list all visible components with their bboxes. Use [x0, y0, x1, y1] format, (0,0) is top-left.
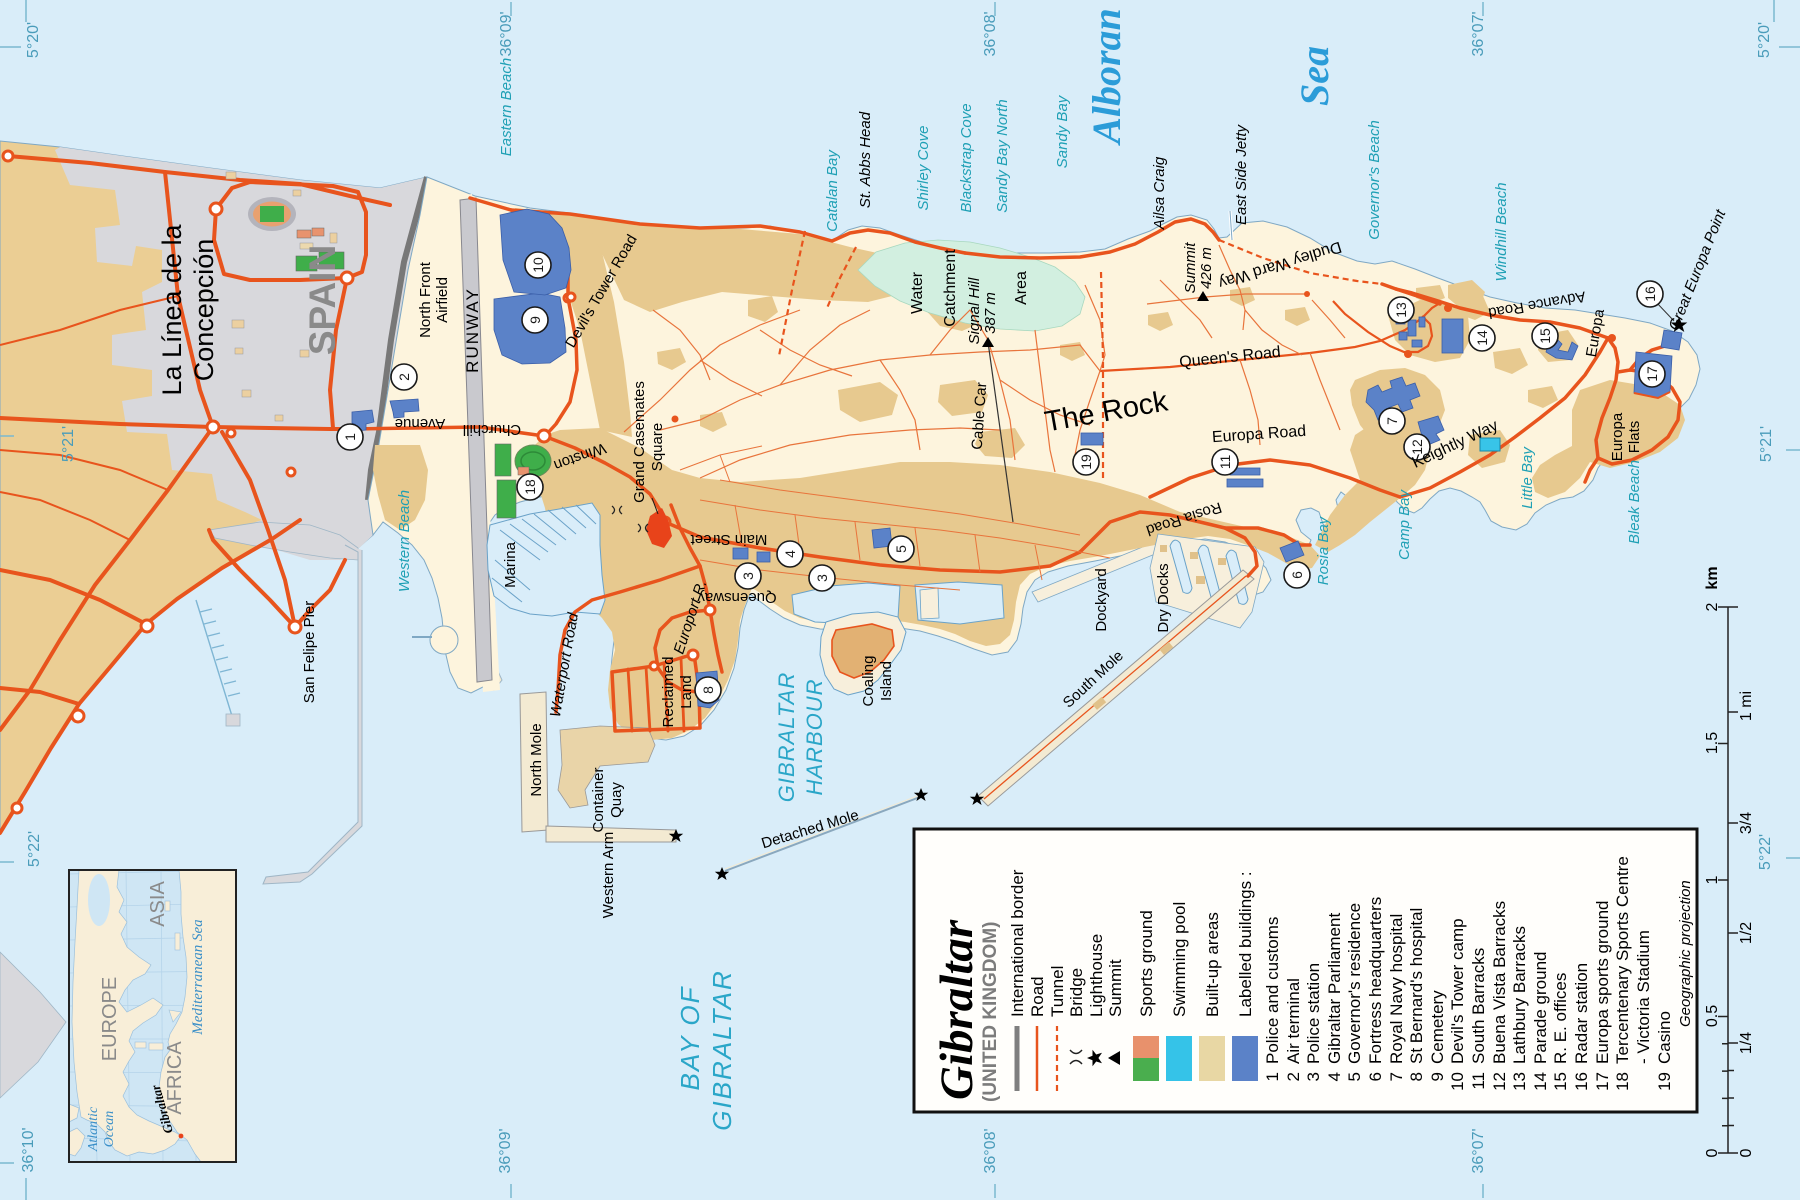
svg-text:Windhill Beach: Windhill Beach [1493, 182, 1510, 281]
svg-text:Flats: Flats [1626, 421, 1643, 454]
svg-text:14: 14 [1531, 1072, 1550, 1091]
svg-text:18: 18 [522, 479, 538, 495]
svg-text:9: 9 [527, 316, 543, 324]
svg-text:San Felipe Pier: San Felipe Pier [301, 601, 318, 704]
svg-text:Sandy Bay: Sandy Bay [1054, 94, 1071, 168]
svg-text:HARBOUR: HARBOUR [802, 678, 827, 795]
svg-text:Ocean: Ocean [102, 1111, 117, 1148]
svg-text:Water: Water [909, 271, 926, 314]
svg-text:8: 8 [700, 686, 716, 694]
svg-text:Summit: Summit [1182, 242, 1199, 294]
svg-text:5°22': 5°22' [1757, 834, 1774, 870]
svg-text:1/2: 1/2 [1738, 922, 1755, 944]
svg-text:Police station: Police station [1304, 963, 1323, 1064]
svg-text:Buena Vista Barracks: Buena Vista Barracks [1490, 901, 1509, 1064]
svg-text:36°07': 36°07' [1470, 11, 1487, 56]
svg-text:2: 2 [396, 373, 412, 381]
svg-text:Camp Bay: Camp Bay [1396, 488, 1413, 560]
svg-text:5: 5 [1345, 1072, 1364, 1081]
svg-text:36°10': 36°10' [20, 1127, 37, 1172]
svg-text:4: 4 [782, 550, 798, 558]
svg-text:2: 2 [1284, 1072, 1303, 1081]
svg-text:RUNWAY: RUNWAY [463, 287, 482, 373]
svg-text:BAY OF: BAY OF [675, 985, 705, 1090]
svg-text:36°07': 36°07' [1470, 1128, 1487, 1173]
svg-text:North Front: North Front [417, 261, 434, 338]
svg-text:Gibraltar: Gibraltar [931, 919, 983, 1100]
svg-text:Lathbury Barracks: Lathbury Barracks [1510, 926, 1529, 1064]
svg-text:5°20': 5°20' [1756, 22, 1773, 58]
svg-text:6: 6 [1289, 571, 1305, 579]
svg-text:11: 11 [1469, 1072, 1488, 1090]
svg-text:Sea: Sea [1292, 46, 1337, 106]
svg-text:36°09': 36°09' [498, 11, 515, 56]
svg-text:Catchment: Catchment [942, 249, 959, 327]
svg-text:Little Bay: Little Bay [1519, 446, 1536, 509]
svg-text:2: 2 [1704, 602, 1721, 611]
svg-text:0: 0 [1738, 1148, 1755, 1157]
svg-text:Royal Navy hospital: Royal Navy hospital [1387, 914, 1406, 1064]
svg-text:St. Abbs Head: St. Abbs Head [857, 111, 874, 208]
svg-text:Bridge: Bridge [1067, 968, 1086, 1017]
svg-text:International border: International border [1008, 869, 1027, 1017]
svg-text:Governor's Beach: Governor's Beach [1366, 120, 1383, 240]
svg-text:4: 4 [1325, 1072, 1344, 1081]
svg-text:19: 19 [1655, 1072, 1674, 1091]
svg-text:Governor's residence: Governor's residence [1345, 903, 1364, 1064]
svg-text:km: km [1704, 566, 1721, 589]
svg-text:Land: Land [678, 675, 695, 708]
svg-text:Tunnel: Tunnel [1048, 966, 1067, 1017]
svg-text:North Mole: North Mole [528, 723, 545, 796]
svg-text:- Victoria Stadium: - Victoria Stadium [1634, 930, 1653, 1064]
svg-text:Signal Hill: Signal Hill [966, 277, 983, 344]
svg-text:1: 1 [342, 433, 358, 441]
svg-text:GIBRALTAR: GIBRALTAR [774, 672, 799, 802]
svg-text:14: 14 [1474, 330, 1490, 346]
svg-text:19: 19 [1078, 454, 1094, 470]
svg-text:Airfield: Airfield [434, 277, 451, 323]
svg-text:Swimming pool: Swimming pool [1170, 902, 1189, 1017]
svg-text:Radar station: Radar station [1572, 963, 1591, 1064]
svg-text:Western Beach: Western Beach [396, 490, 413, 592]
svg-text:Alboran: Alboran [1084, 8, 1129, 147]
svg-text:Shirley Cove: Shirley Cove [915, 125, 932, 210]
svg-text:Europa: Europa [1609, 412, 1626, 461]
svg-text:16: 16 [1642, 286, 1658, 302]
svg-text:Lighthouse: Lighthouse [1087, 934, 1106, 1017]
svg-text:SPAIN: SPAIN [302, 245, 343, 355]
svg-text:6: 6 [1366, 1072, 1385, 1081]
svg-text:36°09': 36°09' [497, 1128, 514, 1173]
svg-text:3: 3 [814, 574, 830, 582]
svg-text:Container: Container [590, 767, 607, 832]
svg-text:1.5: 1.5 [1704, 732, 1721, 754]
svg-text:GIBRALTAR: GIBRALTAR [707, 969, 737, 1131]
svg-text:Atlantic: Atlantic [86, 1106, 101, 1152]
svg-text:South Barracks: South Barracks [1469, 948, 1488, 1064]
svg-text:Concepción: Concepción [189, 239, 219, 382]
svg-text:Western Arm: Western Arm [600, 832, 617, 918]
svg-text:Police and customs: Police and customs [1263, 917, 1282, 1064]
svg-text:8: 8 [1407, 1072, 1426, 1081]
svg-text:Sports ground: Sports ground [1137, 910, 1156, 1017]
svg-text:11: 11 [1217, 455, 1233, 470]
svg-text:36°08': 36°08' [982, 11, 999, 56]
svg-text:426 m: 426 m [1198, 247, 1215, 289]
svg-text:Built-up areas: Built-up areas [1203, 912, 1222, 1017]
svg-text:10: 10 [1448, 1072, 1467, 1091]
svg-text:Summit: Summit [1106, 959, 1125, 1017]
svg-text:Sandy Bay North: Sandy Bay North [994, 99, 1011, 212]
svg-text:Gibraltar Parliament: Gibraltar Parliament [1325, 913, 1344, 1064]
svg-text:Geographic projection: Geographic projection [1677, 880, 1694, 1027]
svg-text:Dry Docks: Dry Docks [1155, 563, 1172, 632]
svg-text:Marina: Marina [502, 541, 519, 588]
svg-text:Coaling: Coaling [860, 656, 877, 707]
svg-text:Road: Road [1028, 976, 1047, 1017]
svg-text:St Bernard's hospital: St Bernard's hospital [1407, 908, 1426, 1064]
svg-text:7: 7 [1384, 417, 1400, 425]
svg-text:Quay: Quay [608, 782, 625, 818]
svg-text:1/4: 1/4 [1738, 1032, 1755, 1054]
svg-text:East Side Jetty: East Side Jetty [1233, 123, 1250, 225]
svg-text:0.5: 0.5 [1704, 1005, 1721, 1027]
svg-text:Grand Casemates: Grand Casemates [631, 381, 648, 503]
svg-text:Labelled buildings :: Labelled buildings : [1236, 871, 1255, 1017]
svg-text:Parade ground: Parade ground [1531, 952, 1550, 1064]
svg-text:Dockyard: Dockyard [1093, 568, 1110, 631]
svg-text:5: 5 [893, 545, 909, 553]
svg-text:Catalan Bay: Catalan Bay [824, 149, 841, 232]
svg-text:3/4: 3/4 [1738, 812, 1755, 834]
svg-text:Mediterranean Sea: Mediterranean Sea [190, 919, 206, 1035]
svg-text:Churchill: Churchill [463, 421, 521, 438]
svg-text:Square: Square [649, 423, 666, 471]
svg-text:Fortress headquarters: Fortress headquarters [1366, 897, 1385, 1064]
svg-text:(UNITED KINGDOM): (UNITED KINGDOM) [980, 922, 1001, 1102]
svg-text:15: 15 [1537, 328, 1553, 344]
svg-text:17: 17 [1593, 1072, 1612, 1091]
svg-text:1: 1 [1263, 1072, 1282, 1081]
svg-text:Cemetery: Cemetery [1428, 990, 1447, 1064]
svg-text:16: 16 [1572, 1072, 1591, 1091]
svg-text:Island: Island [878, 661, 895, 701]
svg-text:17: 17 [1644, 366, 1660, 382]
svg-text:13: 13 [1393, 302, 1409, 318]
svg-text:5°21': 5°21' [60, 426, 77, 462]
svg-text:12: 12 [1490, 1072, 1509, 1091]
svg-text:10: 10 [530, 257, 546, 273]
svg-text:15: 15 [1551, 1072, 1570, 1091]
svg-text:9: 9 [1428, 1072, 1447, 1081]
svg-text:Area: Area [1013, 271, 1030, 305]
svg-text:Europa sports ground: Europa sports ground [1593, 901, 1612, 1065]
svg-text:Ailsa Craig: Ailsa Craig [1151, 156, 1168, 230]
svg-text:Main Street: Main Street [690, 531, 768, 548]
svg-text:7: 7 [1387, 1072, 1406, 1081]
svg-text:Casino: Casino [1655, 1011, 1674, 1064]
svg-text:5°21': 5°21' [1758, 426, 1775, 462]
svg-text:Air terminal: Air terminal [1284, 978, 1303, 1064]
svg-text:Eastern Beach: Eastern Beach [498, 58, 515, 156]
svg-text:387 m: 387 m [982, 292, 999, 334]
svg-text:Avenue: Avenue [395, 415, 446, 432]
svg-text:Bleak Beach: Bleak Beach [1626, 460, 1643, 544]
svg-text:Tercentenary Sports Centre: Tercentenary Sports Centre [1613, 856, 1632, 1064]
svg-text:Devil's Tower camp: Devil's Tower camp [1448, 918, 1467, 1064]
svg-text:Blackstrap Cove: Blackstrap Cove [958, 103, 975, 212]
svg-text:13: 13 [1510, 1072, 1529, 1091]
svg-text:EUROPE: EUROPE [99, 977, 121, 1061]
svg-text:0: 0 [1704, 1148, 1721, 1157]
svg-text:La Línea de la: La Línea de la [157, 223, 187, 395]
svg-text:5°20': 5°20' [25, 22, 42, 58]
svg-text:5°22': 5°22' [26, 831, 43, 867]
svg-text:ASIA: ASIA [147, 881, 169, 927]
svg-text:36°08': 36°08' [982, 1128, 999, 1173]
svg-text:Rosia Bay: Rosia Bay [1315, 515, 1332, 585]
svg-text:Reclaimed: Reclaimed [660, 657, 677, 728]
svg-text:3: 3 [1304, 1072, 1323, 1081]
svg-text:18: 18 [1613, 1072, 1632, 1091]
svg-text:1 mi: 1 mi [1738, 691, 1755, 721]
svg-text:3: 3 [740, 572, 756, 580]
svg-text:R. E. offices: R. E. offices [1551, 973, 1570, 1064]
svg-text:Queensway: Queensway [697, 589, 777, 606]
svg-text:1: 1 [1704, 875, 1721, 884]
